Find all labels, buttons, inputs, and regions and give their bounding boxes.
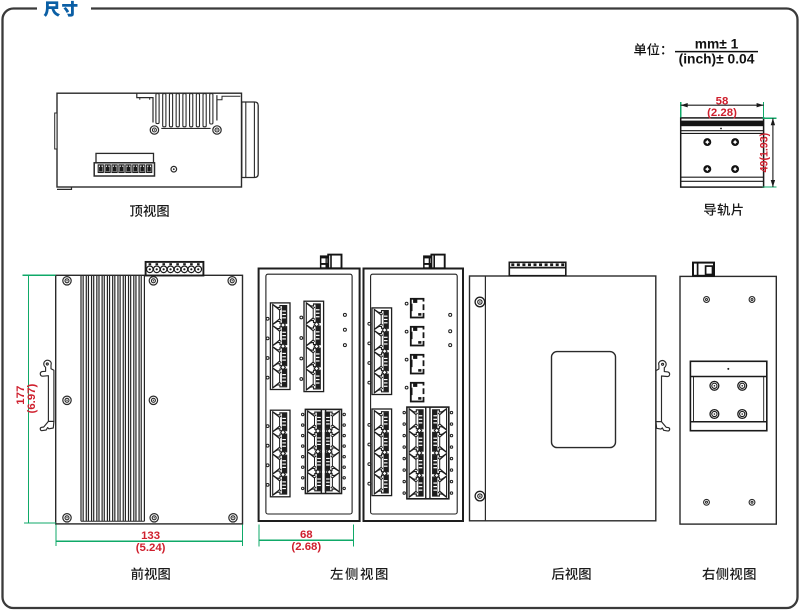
svg-text:(2.28): (2.28) [707,107,737,119]
svg-text:49(1.93): 49(1.93) [758,133,770,172]
svg-text:(6.97): (6.97) [26,384,38,414]
svg-text:68: 68 [300,529,313,541]
svg-text:58: 58 [716,96,729,108]
svg-text:mm± 1: mm± 1 [695,37,739,52]
svg-text:(2.68): (2.68) [291,541,321,553]
svg-text:(inch)± 0.04: (inch)± 0.04 [679,52,755,67]
svg-text:(5.24): (5.24) [136,542,166,554]
svg-text:133: 133 [141,530,160,542]
